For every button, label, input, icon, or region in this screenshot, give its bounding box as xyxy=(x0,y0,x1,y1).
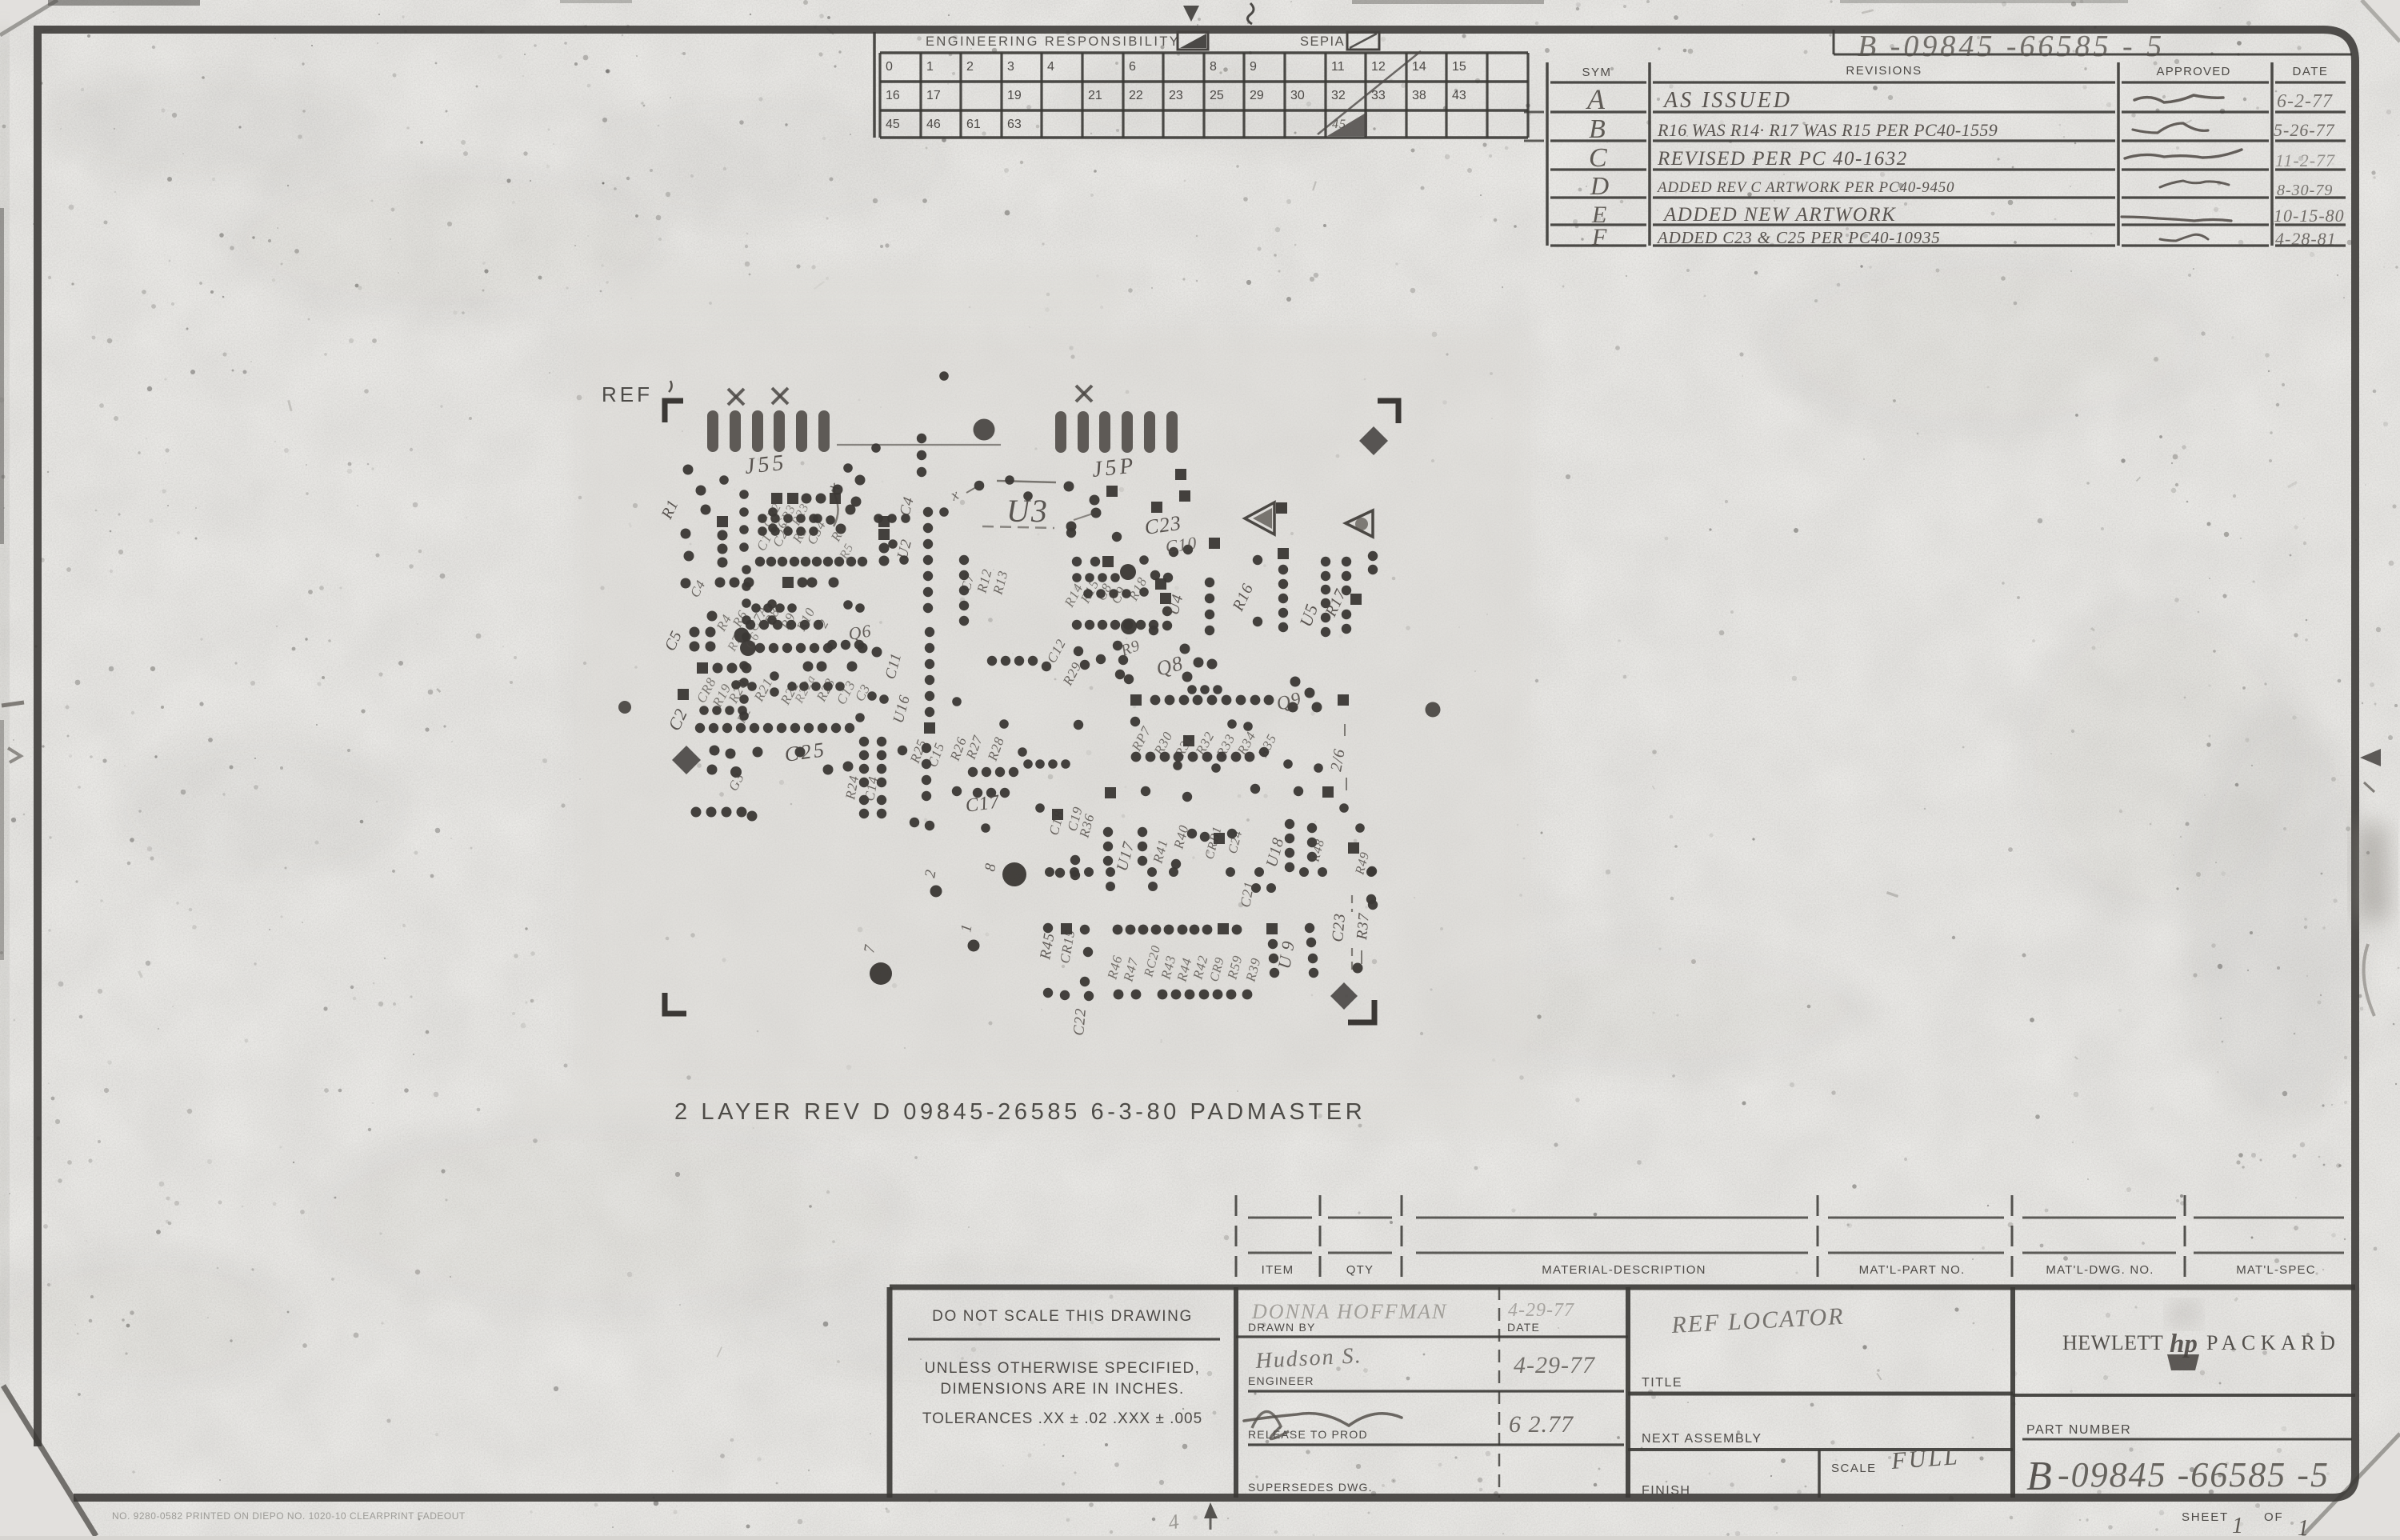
svg-text:MATERIAL-DESCRIPTION: MATERIAL-DESCRIPTION xyxy=(1542,1263,1706,1277)
svg-text:SHEET: SHEET xyxy=(2182,1510,2229,1524)
svg-text:NEXT ASSEMBLY: NEXT ASSEMBLY xyxy=(1642,1432,1762,1446)
svg-text:F: F xyxy=(1591,224,1607,250)
svg-text:11: 11 xyxy=(1331,60,1345,74)
svg-text:4-29-77: 4-29-77 xyxy=(1514,1352,1596,1378)
svg-text:MAT'L-DWG. NO.: MAT'L-DWG. NO. xyxy=(2046,1263,2154,1277)
svg-text:C22: C22 xyxy=(1070,1007,1090,1036)
svg-text:15: 15 xyxy=(1452,60,1466,74)
svg-text:38: 38 xyxy=(1412,89,1426,102)
svg-text:ENGINEERING RESPONSIBILITY: ENGINEERING RESPONSIBILITY xyxy=(926,34,1180,49)
svg-text:TITLE: TITLE xyxy=(1642,1376,1682,1390)
svg-text:29: 29 xyxy=(1250,89,1264,102)
svg-text:PART NUMBER: PART NUMBER xyxy=(2026,1423,2131,1437)
svg-text:J5P: J5P xyxy=(1090,453,1137,482)
svg-text:AS ISSUED: AS ISSUED xyxy=(1662,88,1792,113)
svg-text:REF: REF xyxy=(602,382,653,406)
svg-text:DATE: DATE xyxy=(2293,65,2329,78)
svg-text:FINISH: FINISH xyxy=(1642,1484,1690,1498)
svg-text:4-28-81: 4-28-81 xyxy=(2275,229,2337,249)
svg-text:A: A xyxy=(1586,83,1606,115)
svg-text:SCALE: SCALE xyxy=(1831,1462,1877,1475)
svg-text:32: 32 xyxy=(1331,89,1346,102)
svg-text:8: 8 xyxy=(1210,60,1217,74)
svg-text:4: 4 xyxy=(1047,60,1054,74)
svg-text:5-26-77: 5-26-77 xyxy=(2274,120,2335,140)
svg-text:14: 14 xyxy=(1412,60,1426,74)
svg-text:PACKARD: PACKARD xyxy=(2206,1331,2340,1354)
svg-text:ENGINEER: ENGINEER xyxy=(1248,1374,1314,1387)
svg-text:63: 63 xyxy=(1007,118,1022,131)
svg-text:-09845 -66585 -5: -09845 -66585 -5 xyxy=(2058,1455,2330,1494)
svg-text:OF: OF xyxy=(2264,1510,2283,1524)
svg-text:6-2-77: 6-2-77 xyxy=(2277,91,2333,112)
svg-text:ADDED REV C ARTWORK PER PC40-: ADDED REV C ARTWORK PER PC40-9450 xyxy=(1656,179,1954,196)
svg-text:9: 9 xyxy=(1250,60,1257,74)
svg-text:R16 WAS R14· R17 WAS R15 PER P: R16 WAS R14· R17 WAS R15 PER PC40-1559 xyxy=(1657,120,1998,140)
svg-text:ITEM: ITEM xyxy=(1262,1263,1294,1277)
svg-text:45: 45 xyxy=(886,118,900,131)
svg-text:MAT'L-PART NO.: MAT'L-PART NO. xyxy=(1859,1263,1966,1277)
svg-text:MAT'L-SPEC: MAT'L-SPEC xyxy=(2236,1263,2316,1277)
svg-text:C: C xyxy=(1589,143,1608,173)
svg-text:61: 61 xyxy=(966,118,981,131)
svg-text:TOLERANCES .XX ± .02 .XXX ± .0: TOLERANCES .XX ± .02 .XXX ± .005 xyxy=(922,1410,1202,1427)
svg-text:RELEASE TO PROD: RELEASE TO PROD xyxy=(1248,1428,1368,1441)
svg-text:hp: hp xyxy=(2170,1330,2198,1358)
svg-text:33: 33 xyxy=(1371,89,1386,102)
svg-text:REVISIONS: REVISIONS xyxy=(1846,64,1922,78)
svg-text:30: 30 xyxy=(1290,89,1305,102)
svg-text:B: B xyxy=(2026,1454,2053,1499)
svg-text:3: 3 xyxy=(1007,60,1014,74)
svg-text:Q6: Q6 xyxy=(847,620,874,644)
svg-text:SYM: SYM xyxy=(1582,66,1611,79)
svg-text:25: 25 xyxy=(1210,89,1224,102)
svg-text:0: 0 xyxy=(886,60,893,74)
svg-text:R37: R37 xyxy=(1354,912,1373,942)
svg-text:B: B xyxy=(1589,114,1606,144)
svg-text:SEPIA: SEPIA xyxy=(1300,34,1345,49)
svg-text:17: 17 xyxy=(926,89,941,102)
svg-text:C23: C23 xyxy=(1329,912,1349,942)
svg-text:21: 21 xyxy=(1088,89,1102,102)
svg-text:6 2.77: 6 2.77 xyxy=(1509,1411,1574,1438)
svg-text:HEWLETT: HEWLETT xyxy=(2062,1331,2163,1354)
svg-text:4-29-77: 4-29-77 xyxy=(1508,1300,1574,1321)
svg-text:22: 22 xyxy=(1129,89,1143,102)
svg-text:B -09845 -66585 - 5: B -09845 -66585 - 5 xyxy=(1858,30,2165,63)
svg-text:1: 1 xyxy=(926,60,934,74)
svg-text:11-2-77: 11-2-77 xyxy=(2275,150,2335,170)
svg-text:DATE: DATE xyxy=(1507,1321,1540,1334)
svg-text:43: 43 xyxy=(1452,89,1466,102)
svg-text:FULL: FULL xyxy=(1890,1443,1960,1474)
svg-text:D: D xyxy=(1590,171,1610,200)
svg-text:ADDED C23 & C25 PER PC40-10935: ADDED C23 & C25 PER PC40-10935 xyxy=(1656,228,1941,247)
svg-text:23: 23 xyxy=(1169,89,1183,102)
svg-text:1: 1 xyxy=(2232,1514,2244,1536)
svg-text:8-30-79: 8-30-79 xyxy=(2277,182,2333,199)
svg-text:1: 1 xyxy=(2298,1516,2310,1536)
svg-text:DONNA HOFFMAN: DONNA HOFFMAN xyxy=(1251,1300,1447,1323)
svg-text:12: 12 xyxy=(1371,60,1386,74)
svg-text:REVISED PER PC 40-1632: REVISED PER PC 40-1632 xyxy=(1657,148,1908,170)
svg-text:2: 2 xyxy=(966,60,974,74)
svg-text:16: 16 xyxy=(886,89,900,102)
svg-text:2 LAYER REV D 09845-26585: 2 LAYER REV D 09845-26585 6-3-80 PADMAST… xyxy=(674,1099,1366,1125)
svg-text:SUPERSEDES DWG.: SUPERSEDES DWG. xyxy=(1248,1481,1373,1494)
svg-text:10-15-80: 10-15-80 xyxy=(2274,206,2345,226)
svg-text:QTY: QTY xyxy=(1346,1263,1374,1277)
svg-text:NO. 9280-0582 PRINTED ON DIEPO: NO. 9280-0582 PRINTED ON DIEPO NO. 1020-… xyxy=(112,1510,466,1522)
svg-text:19: 19 xyxy=(1007,89,1022,102)
svg-text:6: 6 xyxy=(1129,60,1136,74)
svg-text:46: 46 xyxy=(926,118,941,131)
svg-text:APPROVED: APPROVED xyxy=(2157,65,2231,78)
svg-text:DO NOT SCALE THIS DRAWING: DO NOT SCALE THIS DRAWING xyxy=(932,1308,1193,1325)
svg-text:UNLESS OTHERWISE SPECIFIED,: UNLESS OTHERWISE SPECIFIED, xyxy=(925,1360,1201,1377)
svg-text:DIMENSIONS ARE IN INCHES.: DIMENSIONS ARE IN INCHES. xyxy=(940,1381,1184,1398)
svg-text:J55: J55 xyxy=(743,450,787,479)
svg-text:ADDED NEW ARTWORK: ADDED NEW ARTWORK xyxy=(1662,204,1896,226)
